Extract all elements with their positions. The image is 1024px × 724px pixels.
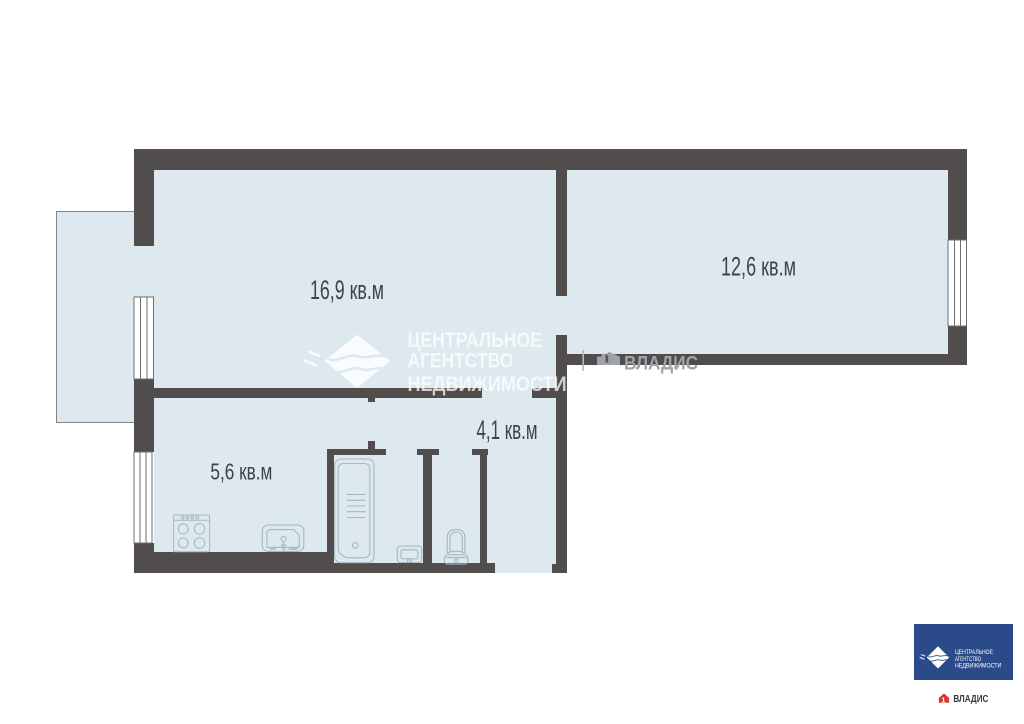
svg-text:5,6 кв.м: 5,6 кв.м (210, 458, 272, 484)
svg-text:АГЕНТСТВО: АГЕНТСТВО (408, 349, 514, 372)
svg-text:ВЛАДИС: ВЛАДИС (953, 694, 988, 705)
svg-text:12,6 кв.м: 12,6 кв.м (721, 252, 796, 282)
svg-text:НЕДВИЖИМОСТИ: НЕДВИЖИМОСТИ (955, 663, 1001, 670)
svg-text:ВЛАДИС: ВЛАДИС (624, 353, 698, 375)
svg-text:НЕДВИЖИМОСТИ ЦЕНТРАЛЬНОЕ АГЕНТ: НЕДВИЖИМОСТИ ЦЕНТРАЛЬНОЕ АГЕНТСТВО НЕДВИ… (160, 173, 860, 196)
svg-text:1: 1 (942, 697, 946, 704)
svg-text:4,1 кв.м: 4,1 кв.м (477, 415, 538, 445)
svg-text:16,9 кв.м: 16,9 кв.м (310, 275, 384, 305)
svg-text:НЕДВИЖИМОСТИ: НЕДВИЖИМОСТИ (408, 373, 567, 396)
svg-text:ЦЕНТРАЛЬНОЕ: ЦЕНТРАЛЬНОЕ (955, 649, 993, 656)
